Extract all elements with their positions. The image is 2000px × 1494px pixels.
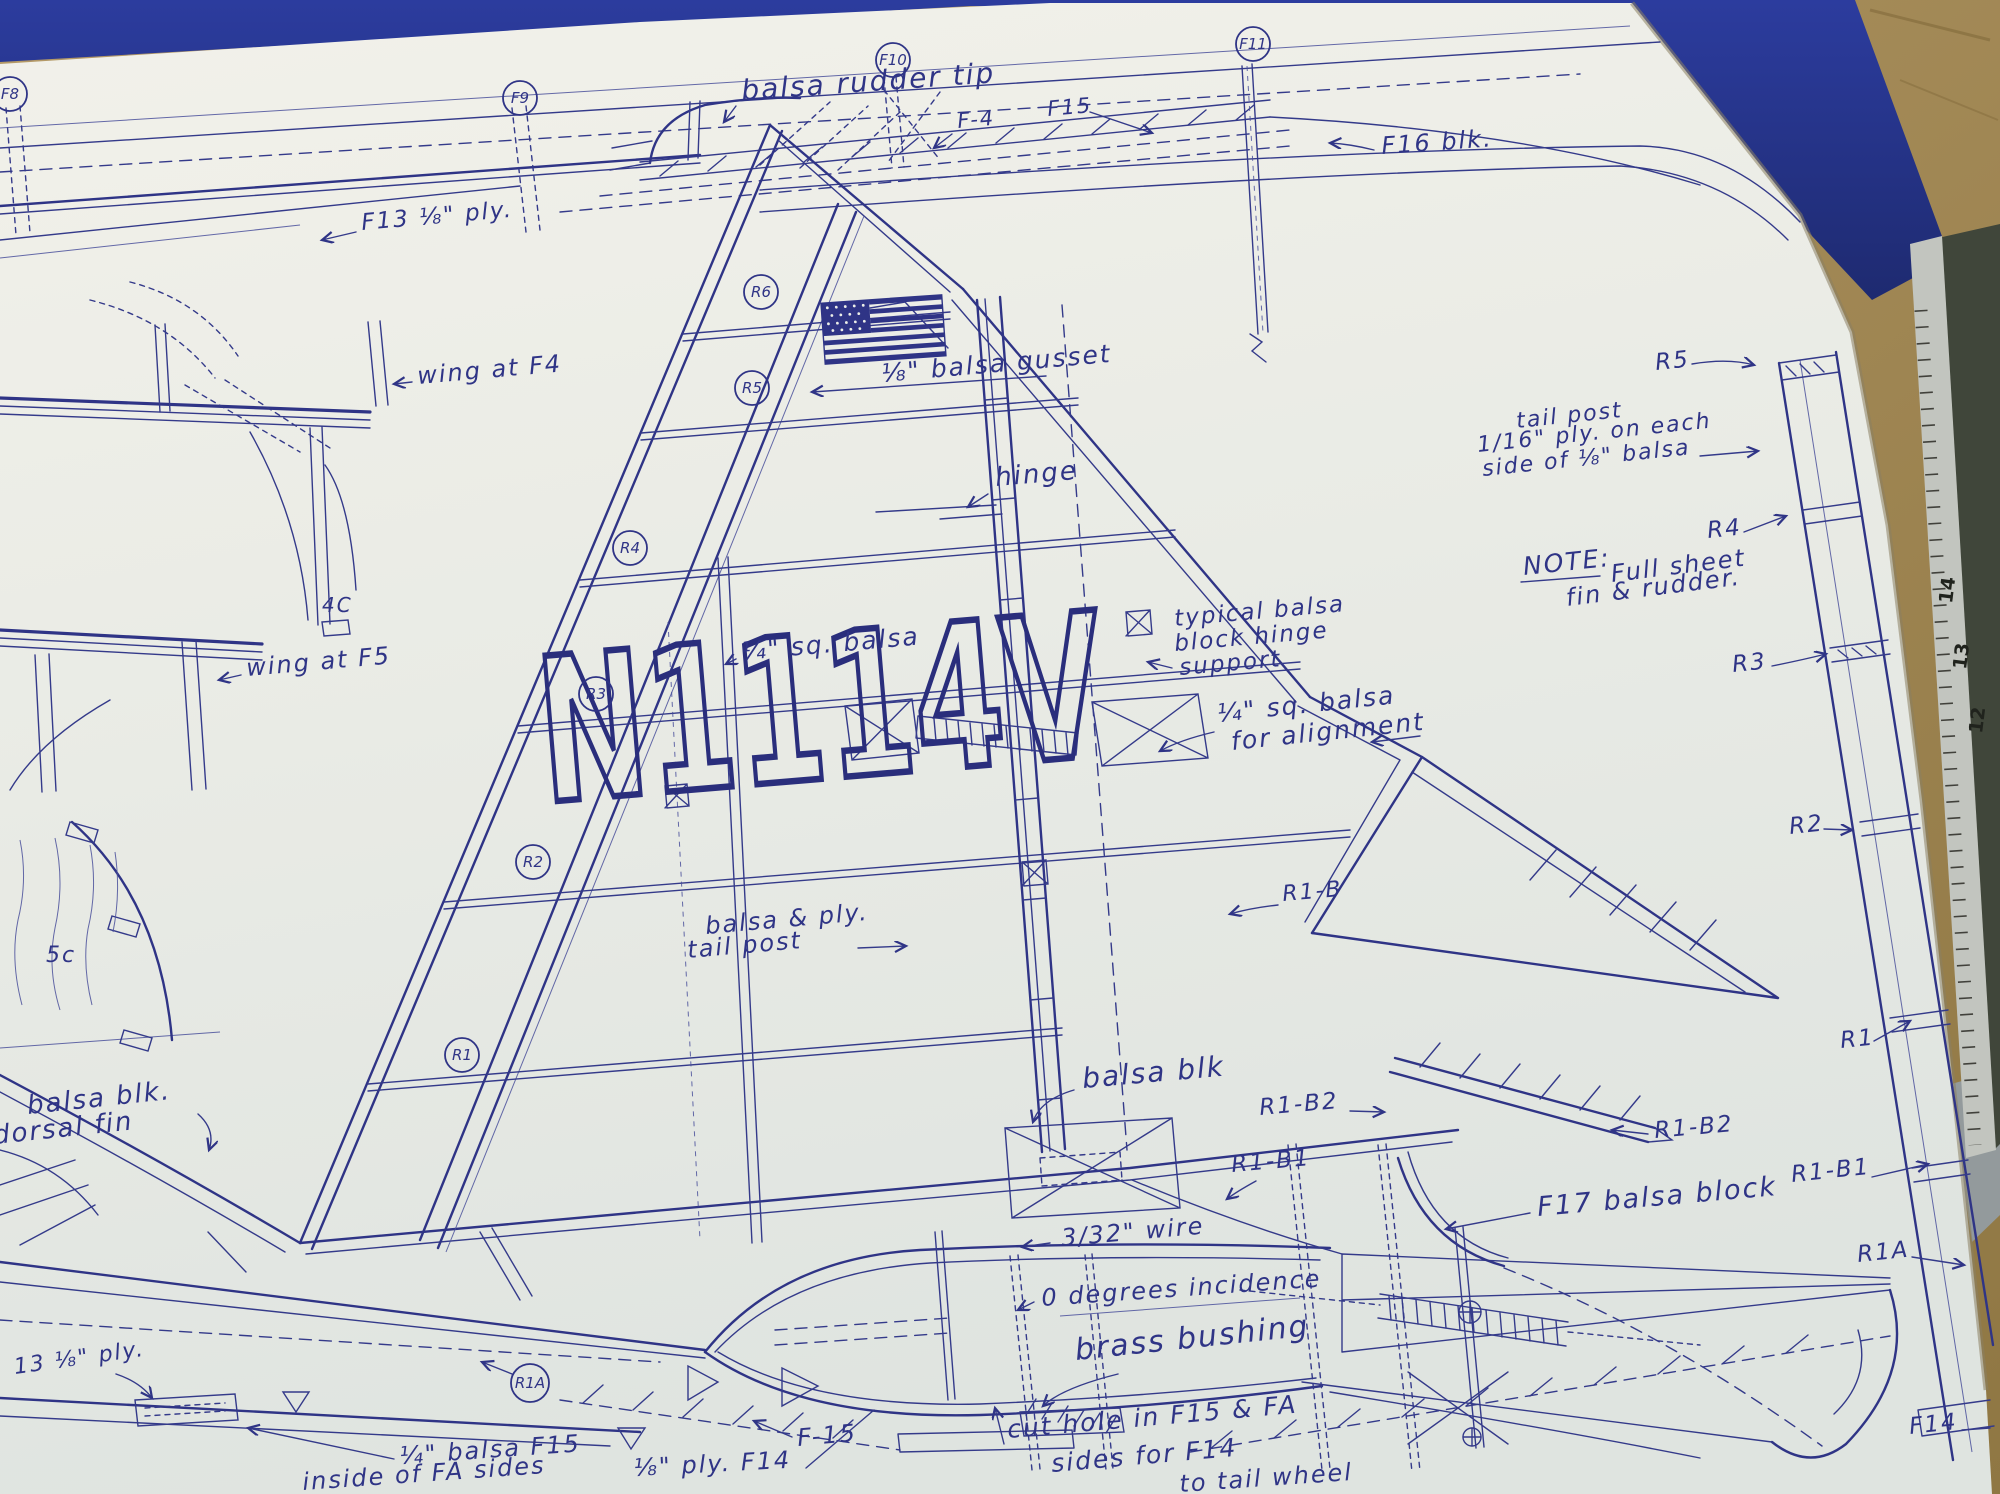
svg-text:R1A: R1A: [515, 1374, 545, 1392]
svg-text:R1: R1: [452, 1046, 472, 1064]
label-4c: 4C: [322, 593, 353, 617]
label-r1a-right: R1A: [1856, 1237, 1911, 1268]
label-r5: R5: [1654, 346, 1691, 375]
label-f15-top: F15: [1046, 93, 1093, 121]
svg-text:F11: F11: [1239, 35, 1267, 53]
blueprint-scene: 14 13 12: [0, 0, 2000, 1494]
svg-text:F8: F8: [1, 85, 19, 103]
registration-letters: N1114V: [530, 570, 1113, 849]
label-r4: R4: [1706, 514, 1743, 543]
ruler-mark-13: 13: [1949, 642, 1974, 671]
svg-text:R5: R5: [742, 379, 762, 397]
ruler-mark-14: 14: [1935, 576, 1960, 605]
label-r3: R3: [1731, 648, 1768, 677]
svg-text:R6: R6: [751, 283, 771, 301]
label-f4: F-4: [956, 106, 996, 133]
svg-text:R2: R2: [523, 853, 543, 871]
label-r2: R2: [1788, 810, 1825, 839]
label-r1b: R1-B: [1281, 877, 1343, 907]
svg-text:R4: R4: [620, 539, 640, 557]
label-5c: 5c: [46, 943, 76, 968]
label-f14: F14: [1908, 1409, 1959, 1440]
ruler-mark-12: 12: [1965, 706, 1990, 735]
label-r1: R1: [1839, 1024, 1876, 1053]
svg-text:R3: R3: [586, 685, 606, 703]
svg-text:F9: F9: [511, 89, 529, 107]
blueprint-photo: 14 13 12: [0, 0, 2000, 1494]
label-f15: F-15: [796, 1419, 858, 1452]
